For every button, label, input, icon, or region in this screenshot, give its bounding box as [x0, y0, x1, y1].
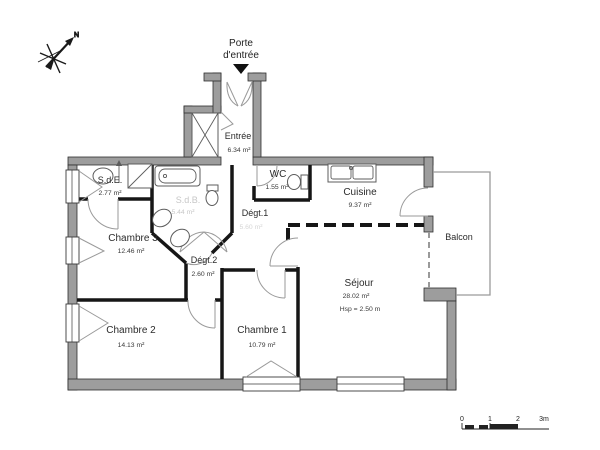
- room-label-chambre3: Chambre 3: [108, 233, 158, 244]
- room-label-chambre1: Chambre 1: [237, 325, 287, 336]
- room-hsp-sejour: Hsp = 2.50 m: [340, 306, 381, 313]
- room-area-cuisine: 9.37 m²: [348, 202, 372, 209]
- sdb-toilet: [206, 185, 218, 206]
- room-label-chambre2: Chambre 2: [106, 325, 156, 336]
- scale-bar: 0 1 2 3m: [460, 416, 549, 429]
- entrance-arrow-icon: [233, 64, 249, 74]
- room-area-degt1: 5.60 m²: [239, 224, 263, 231]
- room-label-wc: WC: [270, 169, 287, 180]
- room-area-sdb: 5.44 m²: [171, 209, 195, 216]
- sde-door: [88, 199, 118, 229]
- kitchen-living-dashed-boundary: [288, 225, 424, 243]
- window-chambre2: [66, 304, 79, 342]
- closet-shelf: [192, 113, 218, 157]
- kitchen-sink: [328, 164, 376, 182]
- room-label-degt1: Dégt.1: [242, 208, 269, 218]
- scale-tick-1: 1: [488, 416, 492, 423]
- scale-tick-3: 3m: [539, 416, 549, 423]
- window-sejour: [337, 377, 404, 391]
- bathtub: [155, 166, 200, 186]
- room-area-degt2: 2.60 m²: [191, 271, 215, 278]
- compass-north-label: N: [74, 32, 79, 39]
- room-label-cuisine: Cuisine: [343, 187, 377, 198]
- closet-door: [221, 112, 233, 130]
- compass-rose: N: [38, 32, 79, 73]
- room-label-sde: S.d.E.: [98, 175, 123, 185]
- chambre1-door: [257, 270, 285, 298]
- room-area-wc: 1.55 m²: [265, 184, 289, 191]
- entrance-label-line1: Porte: [229, 38, 253, 49]
- room-label-balcon: Balcon: [445, 232, 473, 242]
- sejour-door: [270, 238, 298, 266]
- room-area-chambre2: 14.13 m²: [118, 342, 146, 349]
- entrance-annotation: Porte d'entrée: [223, 38, 259, 74]
- entrance-door: [227, 82, 252, 106]
- room-label-sejour: Séjour: [345, 278, 375, 289]
- wc-toilet: [288, 175, 309, 190]
- window-chambre3: [66, 237, 79, 264]
- room-area-sde: 2.77 m²: [98, 190, 122, 197]
- entrance-label-line2: d'entrée: [223, 50, 259, 61]
- room-label-sdb: S.d.B.: [176, 195, 201, 205]
- room-label-entree: Entrée: [225, 131, 252, 141]
- scale-tick-2: 2: [516, 416, 520, 423]
- window-chambre1: [243, 377, 300, 391]
- window-sde: [66, 170, 79, 203]
- balcony-door: [400, 188, 428, 216]
- room-area-chambre3: 12.46 m²: [118, 248, 146, 255]
- chambre2-door: [188, 300, 215, 328]
- room-area-sejour: 28.02 m²: [343, 293, 371, 300]
- room-area-entree: 6.34 m²: [227, 147, 251, 154]
- shower: [128, 164, 152, 188]
- floor-plan: N Porte d'entrée: [0, 0, 600, 450]
- room-label-degt2: Dégt.2: [191, 255, 218, 265]
- scale-tick-0: 0: [460, 416, 464, 423]
- room-area-chambre1: 10.79 m²: [249, 342, 277, 349]
